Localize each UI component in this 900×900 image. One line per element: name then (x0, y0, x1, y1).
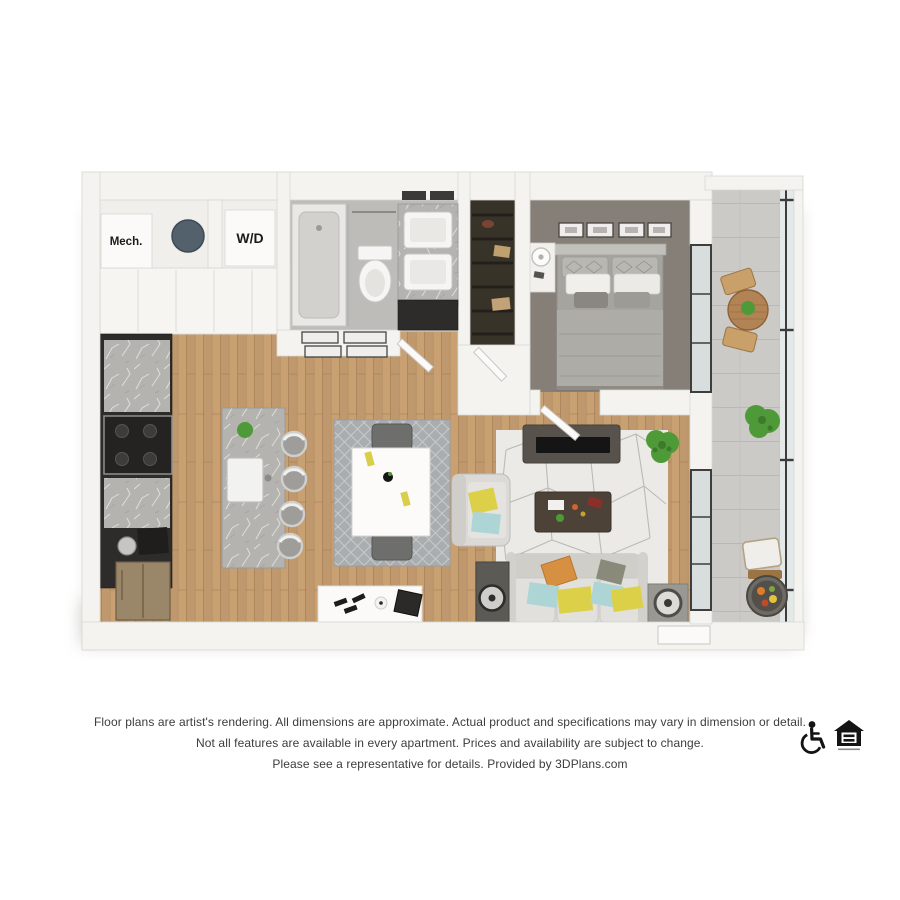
duvet (557, 310, 663, 390)
railing-outer-cap (794, 182, 803, 638)
bar-stool (282, 432, 306, 456)
throw-pillow-blue (527, 582, 560, 608)
bedroom-window (691, 245, 711, 392)
grill (747, 570, 787, 616)
dining-chair (372, 534, 412, 560)
toilet (358, 246, 392, 302)
throw-pillow-yellow (611, 586, 644, 612)
wheelchair-icon (799, 720, 827, 754)
disclaimer-line-1: Floor plans are artist's rendering. All … (0, 712, 900, 733)
kitchen-counter-marble (104, 478, 170, 528)
bathroom-left-wall (277, 172, 290, 332)
turntable (394, 590, 422, 617)
bathtub (292, 204, 348, 326)
vanity (398, 191, 458, 330)
mirror (430, 191, 454, 200)
window-pier (690, 200, 712, 245)
closet-item (482, 220, 494, 228)
gray-pillow (574, 292, 608, 308)
kitchen-counter-marble (104, 340, 170, 412)
living-window-door (691, 470, 711, 610)
walk-in-closet (470, 200, 515, 345)
disclaimer: Floor plans are artist's rendering. All … (0, 712, 900, 775)
table-plant (741, 301, 755, 315)
entry-door (658, 626, 710, 644)
sofa (506, 552, 648, 628)
dining-chair (372, 424, 412, 450)
dining-area (334, 420, 450, 566)
credenza (318, 586, 422, 622)
island-faucet (265, 475, 272, 482)
closet-box (491, 297, 510, 311)
closet-corner-wall (458, 345, 530, 415)
side-table-left (476, 562, 509, 622)
closet-box (493, 245, 510, 258)
equal-housing-opportunity-icon (834, 720, 864, 754)
kitchen-tall-cabinets (100, 268, 290, 334)
pillow (614, 274, 660, 294)
range-cooktop (104, 416, 172, 474)
window-pier (690, 392, 712, 470)
balcony-railing-glass (780, 186, 796, 634)
disclaimer-line-3: Please see a representative for details.… (0, 754, 900, 775)
mirror (402, 191, 426, 200)
balcony-chair (742, 538, 782, 571)
washer-dryer-label: W/D (236, 230, 263, 246)
bedroom-south-wall (530, 390, 540, 415)
bar-stool (280, 502, 304, 526)
dining-table (352, 448, 430, 536)
balcony-roof-edge (705, 176, 803, 190)
tv (536, 437, 610, 453)
pillow (566, 274, 610, 294)
coffee-table (535, 492, 611, 532)
headboard (554, 244, 666, 255)
bar-stool (282, 467, 306, 491)
closet-divider-wall (208, 200, 222, 268)
refrigerator (116, 562, 170, 620)
equal-housing-caption-line (838, 749, 860, 751)
table-plant (556, 514, 564, 522)
footer-icons (799, 720, 864, 754)
disclaimer-line-2: Not all features are available in every … (0, 733, 900, 754)
closet-bedroom-wall (515, 172, 530, 348)
island-plant (237, 422, 253, 438)
bed (554, 244, 666, 391)
laundry-closet: W/D (225, 210, 275, 266)
left-wall (82, 172, 100, 650)
kettle (118, 537, 136, 555)
side-table-right (648, 584, 688, 624)
book (548, 500, 564, 510)
throw-pillow-blue (471, 512, 501, 535)
bathroom-closet-wall (458, 172, 470, 352)
window-pier (690, 610, 712, 624)
bar-stool (278, 534, 302, 558)
vanity-cabinet (398, 300, 458, 330)
top-wall (82, 172, 712, 200)
nightstand (527, 243, 555, 292)
bistro-table (728, 290, 768, 330)
water-heater (172, 220, 204, 252)
centerpiece-plant (388, 472, 392, 476)
throw-pillow-yellow (557, 586, 593, 613)
mech-label: Mech. (110, 236, 143, 248)
drain (316, 225, 322, 231)
gray-pillow (614, 292, 650, 308)
coffee-maker (137, 527, 169, 555)
island-sink (227, 458, 263, 502)
kitchen-island (222, 408, 285, 568)
armchair (452, 474, 510, 546)
